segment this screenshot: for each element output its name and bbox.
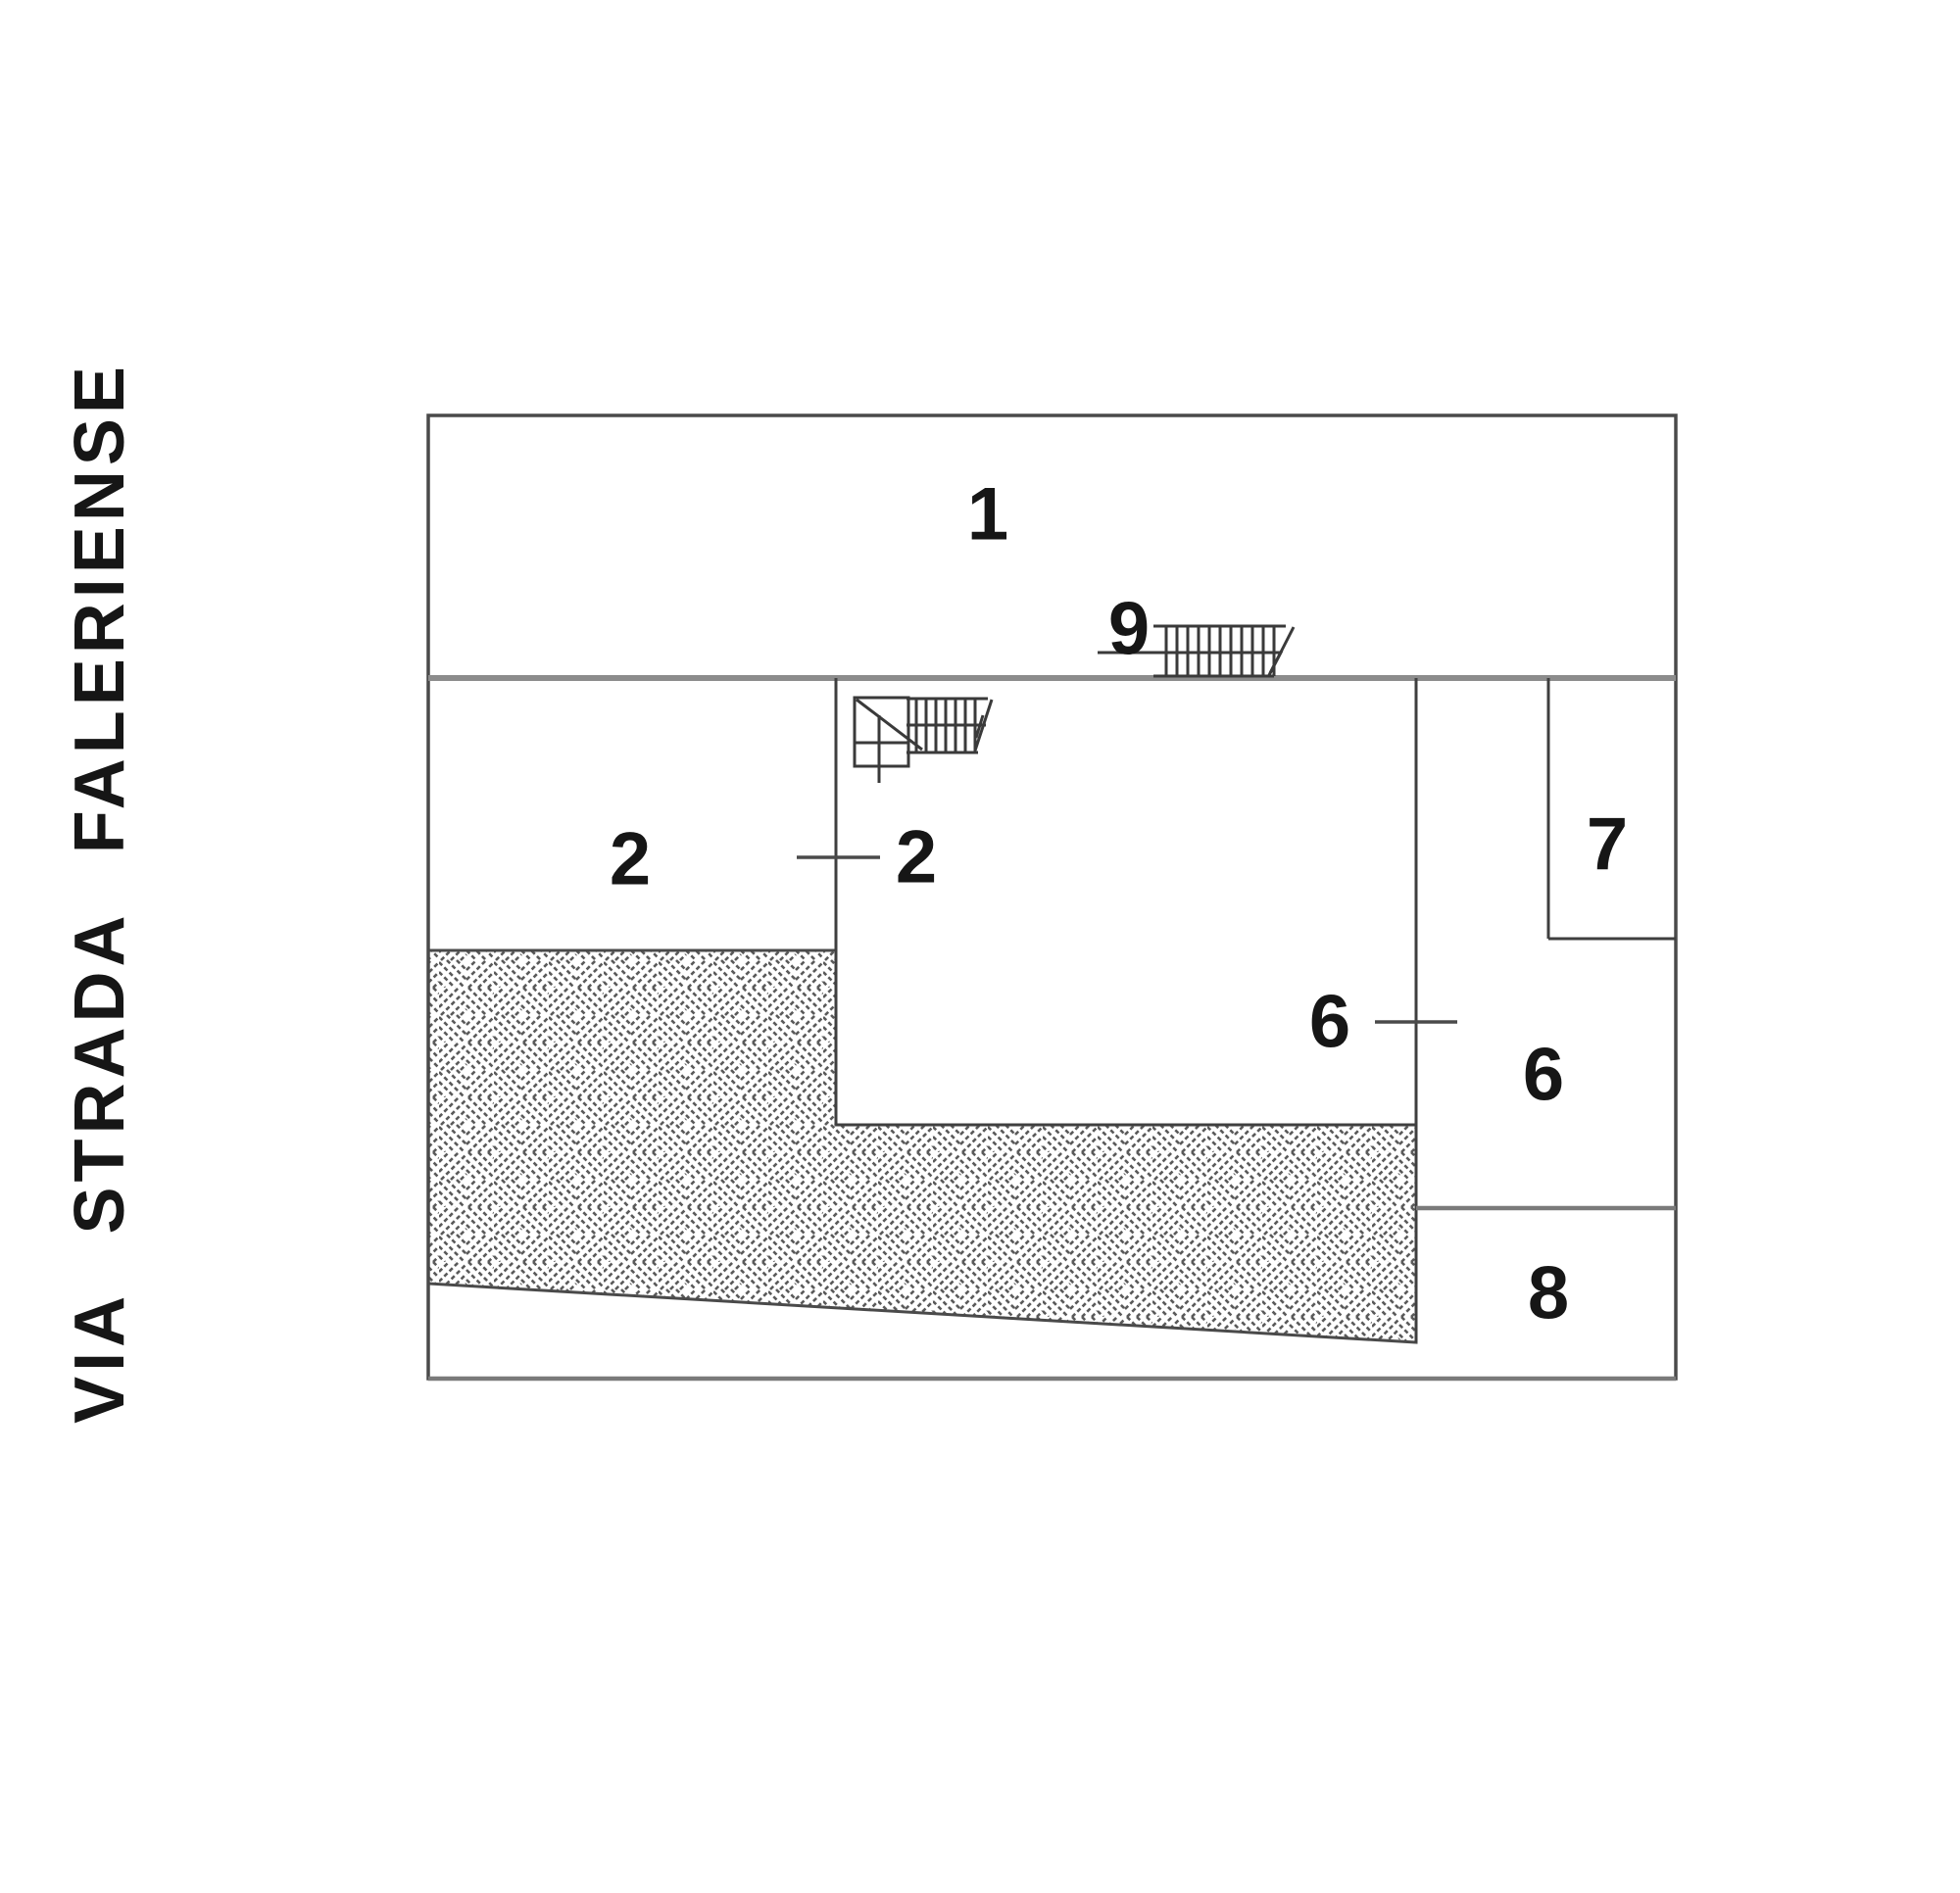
parcel-7-label: 7 (1587, 803, 1628, 887)
staircase-9-label: 9 (1108, 588, 1150, 671)
cadastral-plan-page: VIA STRADA FALERIENSE (0, 0, 1960, 1893)
parcel-8-label: 8 (1528, 1252, 1569, 1335)
hatched-area (428, 950, 1416, 1342)
parcel-2-left-label: 2 (610, 818, 651, 901)
parcel-6-inner-label: 6 (1309, 981, 1350, 1064)
staircase-landing-icon (855, 698, 992, 783)
parcel-6-right-label: 6 (1523, 1034, 1564, 1117)
street-name-label: VIA STRADA FALERIENSE (61, 362, 139, 1424)
parcel-2-right-label: 2 (896, 816, 937, 899)
parcel-1-label: 1 (967, 473, 1008, 557)
cadastral-plan-drawing: VIA STRADA FALERIENSE (0, 0, 1960, 1893)
